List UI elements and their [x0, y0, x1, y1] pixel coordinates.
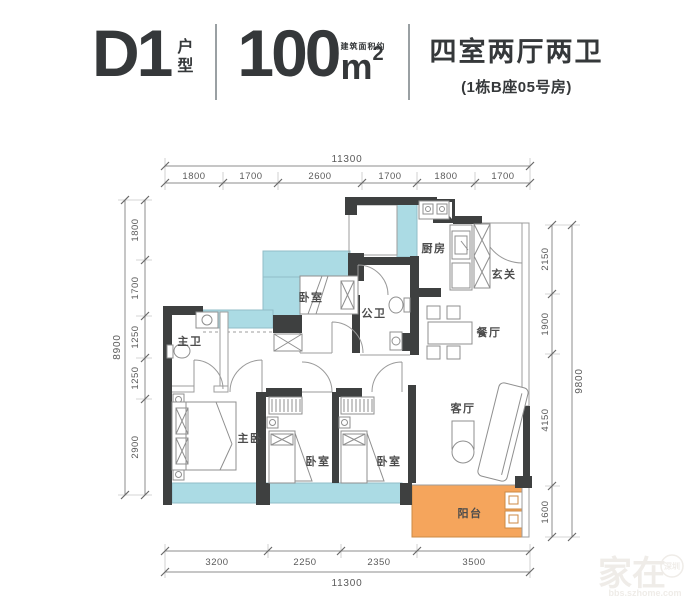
svg-text:1900: 1900: [540, 312, 551, 335]
svg-text:2350: 2350: [367, 557, 390, 568]
floorplan-drawing: 主卫 卧室 厨房 玄关 公卫 餐厅 主卧 卧室 卧室 客厅 阳台 11300 1…: [0, 0, 700, 600]
corridor-cabinet: [274, 334, 302, 351]
svg-text:1800: 1800: [130, 218, 141, 241]
svg-text:1800: 1800: [182, 171, 205, 182]
svg-text:1700: 1700: [491, 171, 514, 182]
watermark: 家在 深圳 bbs.szhome.com: [598, 555, 683, 598]
watermark-site: bbs.szhome.com: [608, 588, 681, 598]
svg-text:1700: 1700: [378, 171, 401, 182]
kitchen-stove-icon: [419, 201, 449, 219]
bedroom-left-furniture: [267, 397, 312, 483]
svg-text:2900: 2900: [130, 435, 141, 458]
room-label-bedroom-left: 卧室: [306, 454, 331, 468]
floorplan-page: D1 户型 100 建筑面积约 m 2 四室两厅两卫 (1栋B座05号房): [0, 0, 700, 600]
room-label-dining: 餐厅: [476, 325, 502, 339]
svg-text:2150: 2150: [540, 247, 551, 270]
svg-text:3200: 3200: [205, 557, 228, 568]
svg-text:2250: 2250: [293, 557, 316, 568]
dimension-left: 8900 1800 1700 1250 1250 2900: [112, 196, 152, 499]
room-label-master-bath: 主卫: [178, 334, 203, 348]
foyer-cabinet: [474, 224, 490, 288]
dimension-right: 9800 2150 1900 4150 1600: [540, 221, 585, 541]
svg-text:4150: 4150: [540, 408, 551, 431]
bedroom-right-furniture: [339, 397, 384, 483]
svg-text:1600: 1600: [540, 500, 551, 523]
room-label-master-bedroom: 主卧: [238, 431, 263, 445]
room-label-living: 客厅: [450, 401, 476, 415]
room-label-bedroom-right: 卧室: [377, 454, 402, 468]
dim-right-total: 9800: [574, 368, 585, 393]
dim-left-total: 8900: [112, 334, 123, 359]
kitchen-counter: [450, 225, 472, 290]
bedroom-right-door-arc: [372, 362, 402, 392]
svg-text:3500: 3500: [462, 557, 485, 568]
bedroom-left-door-arc: [302, 362, 332, 392]
dimension-top: 11300 1800 1700 2600 1700 1800 1700: [161, 154, 534, 190]
svg-text:1700: 1700: [239, 171, 262, 182]
watermark-badge: 深圳: [664, 561, 680, 571]
room-label-foyer: 玄关: [492, 267, 517, 281]
master-bath-fixtures: [167, 312, 218, 358]
master-bedroom-bed: [172, 394, 236, 480]
master-bedroom-door-arc: [230, 360, 262, 392]
svg-text:1250: 1250: [130, 325, 141, 348]
room-label-balcony: 阳台: [458, 506, 483, 520]
room-label-kitchen: 厨房: [422, 241, 447, 255]
dimension-bottom: 3200 2250 2350 3500 11300: [161, 544, 534, 589]
svg-text:1800: 1800: [434, 171, 457, 182]
master-bath-door-arc: [194, 360, 223, 389]
dim-top-total: 11300: [331, 154, 362, 165]
living-sofa: [452, 382, 529, 482]
room-label-bedroom-top: 卧室: [299, 290, 324, 304]
dining-table: [427, 306, 472, 359]
svg-text:1700: 1700: [130, 276, 141, 299]
dim-bottom-total: 11300: [331, 578, 362, 589]
svg-text:1250: 1250: [130, 366, 141, 389]
svg-text:2600: 2600: [308, 171, 331, 182]
room-label-public-bath: 公卫: [362, 307, 387, 320]
